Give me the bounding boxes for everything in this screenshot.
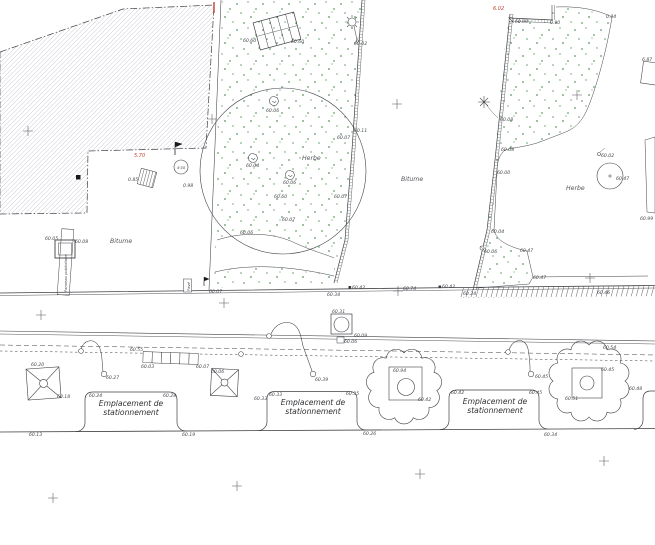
grid-cross-icon (36, 310, 46, 320)
parking-bay-label: Emplacement de (463, 397, 528, 406)
elevation-label: 60.06 (211, 369, 224, 375)
elevation-label: 60.42 (451, 390, 464, 396)
elevation-label: 60.07 (337, 135, 350, 141)
elevation-label: 60.42 (352, 285, 365, 291)
elevation-label: 60.20 (31, 362, 44, 368)
elevation-label: 0.94 (606, 14, 616, 20)
elevation-label: 60.06 (266, 108, 279, 114)
elevation-label: 60.47 (616, 176, 629, 182)
elevation-label: 6.87 (642, 57, 652, 63)
elevation-label: 0.90 (550, 20, 560, 26)
sidewalk-line (0, 429, 655, 433)
elevation-label: 60.06 (283, 180, 296, 186)
elevation-label: 60.45 (601, 367, 614, 373)
elevation-label: 60.27 (106, 375, 119, 381)
elevation-label: 60.55 (130, 347, 143, 353)
parking-bay-label: Emplacement de (281, 398, 346, 407)
elevation-label: 60.74 (403, 286, 416, 292)
elevation-label: 60.11 (354, 128, 367, 134)
elevation-label: 60.34 (327, 292, 340, 298)
grid-cross-icon (48, 493, 58, 503)
grid-cross-icon (599, 456, 609, 466)
elevation-label: 60.47 (533, 275, 546, 281)
billboard-text: Panneau publicitaire (64, 253, 68, 292)
surface-label-herbe: Herbe (302, 155, 321, 162)
site-plan-drawing: 60.6060.6060.0260.0660.0460.0660.6060.07… (0, 0, 655, 545)
elevation-label: 60.08 (501, 147, 514, 153)
elevation-label: 60.99 (640, 216, 653, 222)
elevation-label: 60.34 (544, 432, 557, 438)
small-grate-symbol (137, 168, 157, 188)
elevation-label: 60.34 (463, 291, 476, 297)
road-edge (0, 331, 655, 341)
spot-elevation-marker (439, 286, 441, 288)
elevation-label: 60.60 (291, 39, 304, 45)
grid-cross-icon (392, 99, 402, 109)
elevation-label: 60.45 (529, 390, 542, 396)
elevation-label: 60.06 (484, 249, 497, 255)
elevation-label: 60.05 (45, 236, 58, 242)
elevation-label: 60.02 (601, 153, 614, 159)
elevation-label: 60.94 (393, 368, 406, 374)
elevation-label: 60.26 (363, 431, 376, 437)
parking-bay-label: stationnement (467, 406, 523, 415)
elevation-label: 60.18 (57, 394, 70, 400)
elevation-label: 60.07 (209, 289, 222, 295)
elevation-label: 60.35 (346, 391, 359, 397)
street-lamp-icon (239, 322, 316, 376)
bush-icon (248, 154, 257, 163)
elevation-label: 60.60 (243, 38, 256, 44)
grid-cross-icon (232, 481, 242, 491)
planter-tree-icon (26, 367, 61, 400)
spot-elevation-marker (349, 287, 351, 289)
elevation-label: 60.60 (274, 194, 287, 200)
elevation-label: 60.00 (515, 19, 528, 25)
surface-label-bitume: Bitume (401, 175, 423, 183)
survey-flag-icon (204, 277, 209, 286)
elevation-label: 60.07 (282, 217, 295, 223)
dimension-label: 5.70 (134, 153, 145, 159)
canopy-tree-icon (366, 349, 441, 424)
elevation-label: 60.06 (344, 339, 357, 345)
curb-hatch-band (460, 286, 655, 299)
site-plan-page: 60.6060.6060.0260.0660.0460.0660.6060.07… (0, 0, 655, 545)
elevation-label: 60.08 (500, 117, 513, 123)
parking-bay-label: stationnement (285, 407, 341, 416)
grid-cross-icon (219, 298, 229, 308)
canopy-tree-icon (549, 341, 629, 421)
road-marking-dashed (0, 345, 655, 355)
surface-label-herbe: Herbe (566, 185, 585, 192)
grid-cross-icon (393, 286, 403, 296)
right-edge-structures (641, 61, 655, 213)
elevation-label: 60.47 (520, 248, 533, 254)
utility-box (331, 314, 352, 343)
elevation-label: 60.39 (315, 377, 328, 383)
pave-text: Pavé (187, 281, 191, 291)
surface-label-bitume: Bitume (110, 237, 132, 245)
grid-cross-icon (415, 469, 425, 479)
road-edge (0, 334, 655, 344)
street-lamp-icon (506, 341, 534, 377)
boundary-point-marker (76, 175, 81, 180)
elevation-label: 0.98 (183, 183, 193, 189)
elevation-label: 60.02 (354, 41, 367, 47)
elevation-label: 60.00 (497, 170, 510, 176)
grid-cross-icon (585, 273, 595, 283)
parking-bay (634, 391, 655, 429)
elevation-label: 60.03 (141, 364, 154, 370)
elevation-label: 60.54 (603, 345, 616, 351)
elevation-label: 60.42 (418, 397, 431, 403)
elevation-label: 60.06 (240, 230, 253, 236)
elevation-label: 60.46 (597, 290, 610, 296)
elevation-label: 60.51 (565, 396, 578, 402)
elevation-label: 60.42 (442, 284, 455, 290)
elevation-label: 60.48 (629, 386, 642, 392)
small-structure (641, 61, 655, 85)
dimension-label: 6.02 (493, 6, 504, 12)
elevation-label: 60.07 (196, 364, 209, 370)
elevation-label: 60.13 (29, 432, 42, 438)
elevation-label: 60.45 (535, 374, 548, 380)
elevation-label: 60.07 (334, 194, 347, 200)
bush-icon (285, 171, 294, 180)
elevation-label: 60.33 (254, 396, 267, 402)
utility-star-icon (478, 96, 498, 118)
elevation-label: 0.85 (128, 177, 138, 183)
hatched-parcel (0, 2, 214, 214)
bush-icon (269, 97, 278, 106)
elevation-label: 60.31 (332, 309, 345, 315)
tree-note: 4'50 (177, 165, 186, 170)
elevation-label: 60.08 (75, 239, 88, 245)
parking-bay-label: Emplacement de (99, 399, 164, 408)
parking-bay-label: stationnement (103, 408, 159, 417)
elevation-label: 60.04 (491, 229, 504, 235)
elevation-label: 60.04 (246, 163, 259, 169)
bench-row (143, 352, 199, 365)
elevation-label: 60.19 (182, 432, 195, 438)
elevation-label: 60.09 (354, 333, 367, 339)
green-zone-1 (200, 0, 366, 288)
elevation-label: 60.28 (163, 393, 176, 399)
